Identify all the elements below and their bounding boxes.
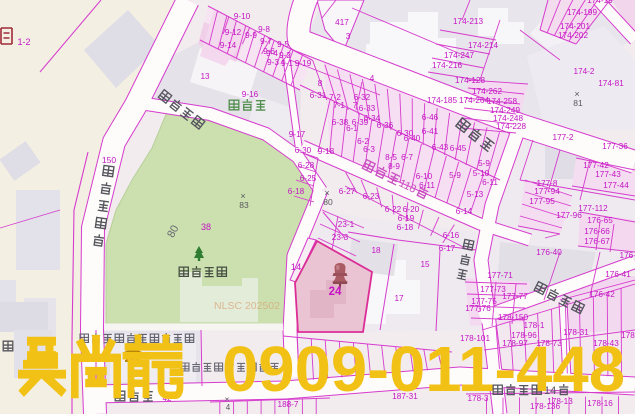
svg-text:18: 18 [371,246,381,255]
svg-text:9-10: 9-10 [234,12,251,21]
svg-text:5-9: 5-9 [478,159,490,168]
svg-text:174-213: 174-213 [453,17,483,26]
svg-text:80: 80 [323,197,333,207]
svg-text:9-16: 9-16 [242,90,259,99]
svg-text:6-33: 6-33 [359,104,376,113]
svg-text:6-23: 6-23 [363,192,380,201]
svg-text:6-45: 6-45 [450,144,467,153]
svg-text:176-41: 176-41 [605,270,631,279]
svg-text:6-16: 6-16 [443,231,460,240]
svg-text:6-38: 6-38 [332,118,349,127]
svg-text:6-18: 6-18 [397,223,414,232]
svg-text:177-94: 177-94 [534,187,560,196]
svg-text:177-44: 177-44 [603,181,629,190]
svg-text:176-42: 176-42 [589,290,615,299]
svg-text:8-9: 8-9 [388,162,400,171]
svg-text:9-8: 9-8 [258,25,270,34]
svg-text:6-11: 6-11 [419,181,435,190]
svg-text:174-228: 174-228 [496,122,526,131]
svg-text:8: 8 [318,79,323,88]
svg-text:9-19: 9-19 [295,59,312,68]
svg-text:177-95: 177-95 [529,197,555,206]
svg-text:6-20: 6-20 [403,205,420,214]
svg-text:9-5: 9-5 [277,40,289,49]
svg-text:9-6: 9-6 [263,47,275,56]
svg-text:5-13: 5-13 [467,190,484,199]
svg-text:177-112: 177-112 [578,204,608,213]
svg-text:81: 81 [573,98,583,108]
svg-text:6-22: 6-22 [385,205,402,214]
svg-text:7: 7 [353,101,358,110]
svg-text:14: 14 [291,262,302,273]
svg-text:4: 4 [370,74,375,83]
svg-text:177-71: 177-71 [487,271,513,280]
svg-text:38: 38 [201,222,211,232]
svg-text:177-77: 177-77 [502,292,528,301]
svg-text:9-14: 9-14 [220,41,237,50]
svg-text:1-2: 1-2 [17,37,30,47]
svg-text:174-264: 174-264 [459,96,489,105]
svg-text:9-3: 9-3 [267,58,279,67]
svg-text:7-1: 7-1 [333,101,345,110]
svg-text:9-18: 9-18 [318,147,335,156]
svg-text:23-3: 23-3 [332,233,349,242]
svg-text:6-28: 6-28 [298,161,315,170]
svg-text:174-202: 174-202 [558,31,588,40]
svg-text:13: 13 [200,72,210,81]
svg-text:6-3: 6-3 [363,145,375,154]
svg-text:6-17: 6-17 [439,244,456,253]
svg-text:176-4: 176-4 [620,251,635,260]
svg-text:6-7: 6-7 [401,153,413,162]
svg-text:5-10: 5-10 [473,169,490,178]
svg-text:177-43: 177-43 [595,170,621,179]
svg-text:3: 3 [346,32,351,41]
svg-text:6-43: 6-43 [432,143,449,152]
svg-text:6-27: 6-27 [339,187,356,196]
svg-text:174-214: 174-214 [468,41,498,50]
svg-text:174-199: 174-199 [567,8,597,17]
svg-text:6-39: 6-39 [352,118,369,127]
svg-text:9-12: 9-12 [225,28,242,37]
svg-text:177-76: 177-76 [465,304,491,313]
svg-text:5-9: 5-9 [449,171,461,180]
svg-text:174-19: 174-19 [587,0,613,5]
svg-text:174-216: 174-216 [432,61,462,70]
svg-text:150: 150 [102,155,116,165]
svg-text:174-81: 174-81 [598,79,624,88]
svg-text:83: 83 [239,200,249,210]
svg-text:174-262: 174-262 [472,87,502,96]
svg-text:6-14: 6-14 [456,207,473,216]
svg-text:24: 24 [329,286,342,298]
svg-text:174-185: 174-185 [427,96,457,105]
svg-text:6-36: 6-36 [377,121,394,130]
svg-text:0909-011-448: 0909-011-448 [222,333,625,405]
svg-text:15: 15 [420,260,430,269]
svg-text:174-258: 174-258 [487,97,517,106]
svg-text:6-41: 6-41 [422,127,439,136]
svg-text:178-1: 178-1 [524,321,545,330]
svg-text:9-9: 9-9 [245,31,257,40]
svg-text:174-128: 174-128 [455,76,485,85]
svg-text:417: 417 [335,18,349,27]
svg-text:6-19: 6-19 [398,214,415,223]
svg-text:176-65: 176-65 [587,216,613,225]
svg-text:6-32: 6-32 [354,93,371,102]
svg-text:174-2: 174-2 [574,67,595,76]
svg-text:174-201: 174-201 [560,22,590,31]
svg-text:9-17: 9-17 [289,130,306,139]
svg-text:6-31: 6-31 [310,91,327,100]
svg-text:176-40: 176-40 [536,248,562,257]
svg-text:17: 17 [394,294,404,303]
svg-text:174-247: 174-247 [444,51,474,60]
svg-text:9-1: 9-1 [281,59,293,68]
svg-text:176-67: 176-67 [584,237,610,246]
svg-text:177-2: 177-2 [553,133,574,142]
svg-text:177-36: 177-36 [602,142,628,151]
svg-text:177-42: 177-42 [583,161,609,170]
svg-text:6-11: 6-11 [482,178,498,187]
svg-text:6-40: 6-40 [404,134,421,143]
svg-text:NLSC 202502: NLSC 202502 [214,300,280,312]
svg-text:9-7: 9-7 [260,37,272,46]
svg-text:8-5: 8-5 [385,153,397,162]
svg-text:6-30: 6-30 [295,146,312,155]
svg-text:6-25: 6-25 [300,174,317,183]
svg-text:176-66: 176-66 [584,227,610,236]
svg-text:6-10: 6-10 [416,172,433,181]
svg-text:6-18: 6-18 [288,187,305,196]
svg-text:6-46: 6-46 [422,113,439,122]
svg-text:23-1: 23-1 [338,220,355,229]
